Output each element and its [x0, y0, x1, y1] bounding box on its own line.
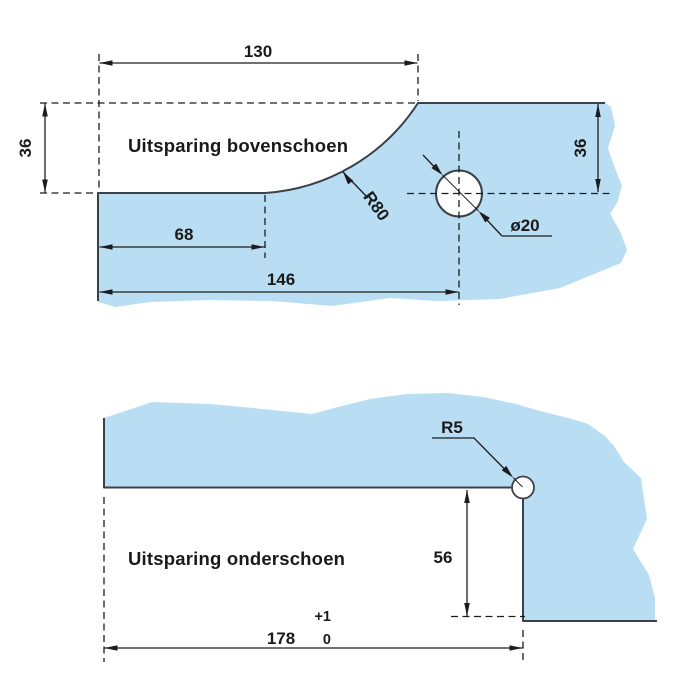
dim-label-36-right: 36	[571, 139, 590, 158]
tolerance-plus: +1	[314, 609, 331, 625]
technical-drawing-canvas: 130 36 Uitsparing bovenschoen 68 146	[0, 0, 700, 700]
dim-label-56: 56	[434, 548, 453, 567]
dim-label-178: 178	[267, 629, 295, 648]
dim-label-146: 146	[267, 270, 295, 289]
glass-panel-top-shape	[98, 103, 627, 307]
construction-lines-bottom	[104, 497, 525, 662]
view-title-top: Uitsparing bovenschoen	[128, 135, 348, 156]
view-title-bottom: Uitsparing onderschoen	[128, 548, 345, 569]
top-view: 130 36 Uitsparing bovenschoen 68 146	[16, 42, 627, 307]
bottom-view: Uitsparing onderschoen R5 56 178 +1 0	[104, 393, 657, 662]
dim-step-height: 56	[434, 490, 470, 616]
dim-label-130: 130	[244, 42, 272, 61]
dim-step-width: 178 +1 0	[105, 609, 523, 651]
dim-label-36-left: 36	[16, 139, 35, 158]
technical-drawing-page: 130 36 Uitsparing bovenschoen 68 146	[0, 0, 700, 700]
glass-panel-bottom-shape	[104, 393, 655, 621]
dim-label-68: 68	[175, 225, 194, 244]
dim-cutout-width: 130	[100, 42, 418, 66]
dim-label-r5: R5	[441, 418, 463, 437]
tolerance-stack: +1 0	[314, 609, 331, 648]
dim-label-o20: ø20	[510, 216, 539, 235]
dim-cutout-depth: 36	[16, 104, 48, 193]
tolerance-zero: 0	[323, 632, 331, 648]
